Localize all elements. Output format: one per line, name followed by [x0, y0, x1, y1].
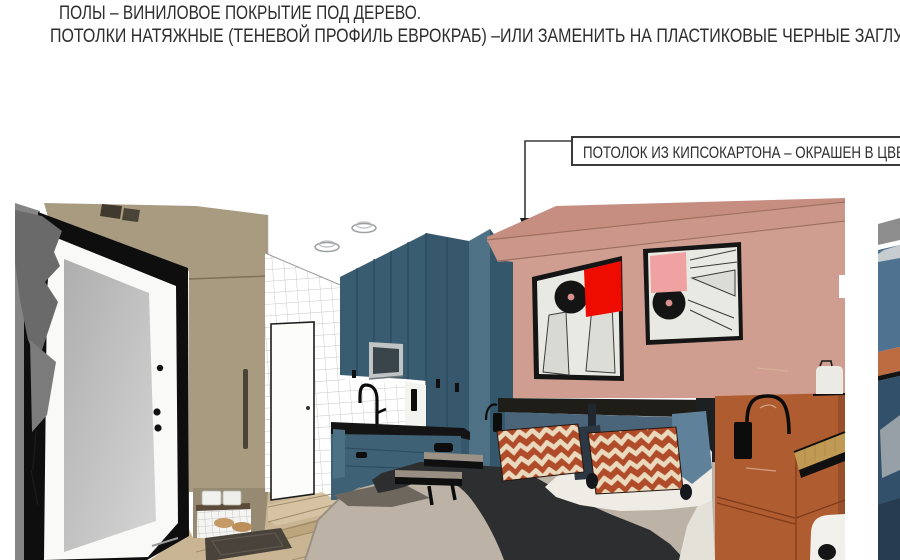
svg-text:ПОТОЛКИ НАТЯЖНЫЕ (ТЕНЕВОЙ ПРОФ: ПОТОЛКИ НАТЯЖНЫЕ (ТЕНЕВОЙ ПРОФИЛЬ ЕВРОКР…: [50, 23, 900, 47]
svg-text:ПОЛЫ – ВИНИЛОВОЕ ПОКРЫТИЕ ПОД: ПОЛЫ – ВИНИЛОВОЕ ПОКРЫТИЕ ПОД ДЕРЕВО.: [59, 3, 421, 24]
svg-text:ПОТОЛОК ИЗ КИПСОКАРТОНА – ОКРА: ПОТОЛОК ИЗ КИПСОКАРТОНА – ОКРАШЕН В ЦВЕТ: [583, 143, 900, 162]
